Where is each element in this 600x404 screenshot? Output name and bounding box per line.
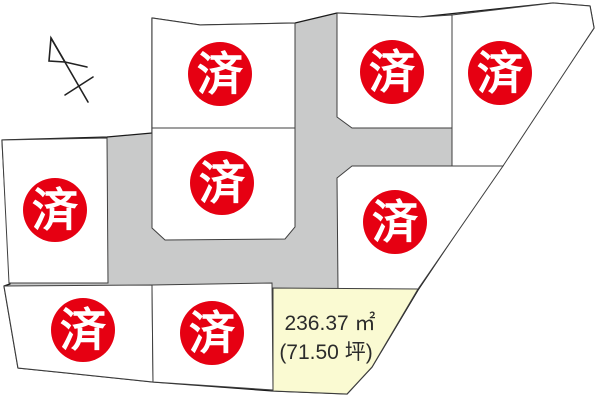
north-arrow-icon — [49, 38, 93, 102]
sold-stamp: 済 — [190, 151, 254, 215]
sold-stamp: 済 — [360, 40, 424, 104]
sold-stamp-label: 済 — [477, 47, 524, 99]
sold-stamp: 済 — [51, 298, 115, 362]
sold-stamp-label: 済 — [32, 184, 79, 236]
available-lot-area-m2: 236.37 ㎡ — [284, 311, 375, 335]
sold-stamp: 済 — [188, 42, 252, 106]
sold-stamp-label: 済 — [60, 304, 107, 356]
site-plan-map: 済 済 済 済 済 済 済 — [0, 0, 600, 404]
sold-stamp: 済 — [468, 41, 532, 105]
sold-stamp-label: 済 — [372, 196, 419, 248]
sold-stamp-label: 済 — [189, 307, 236, 359]
available-lot-area-tsubo: (71.50 坪) — [279, 341, 372, 364]
sold-stamp: 済 — [363, 190, 427, 254]
sold-stamp-label: 済 — [369, 46, 416, 98]
site-plan-page: 済 済 済 済 済 済 済 — [0, 0, 600, 404]
sold-stamp-label: 済 — [197, 48, 244, 100]
sold-stamp: 済 — [23, 178, 87, 242]
sold-stamp: 済 — [180, 301, 244, 365]
sold-stamp-label: 済 — [199, 157, 246, 209]
